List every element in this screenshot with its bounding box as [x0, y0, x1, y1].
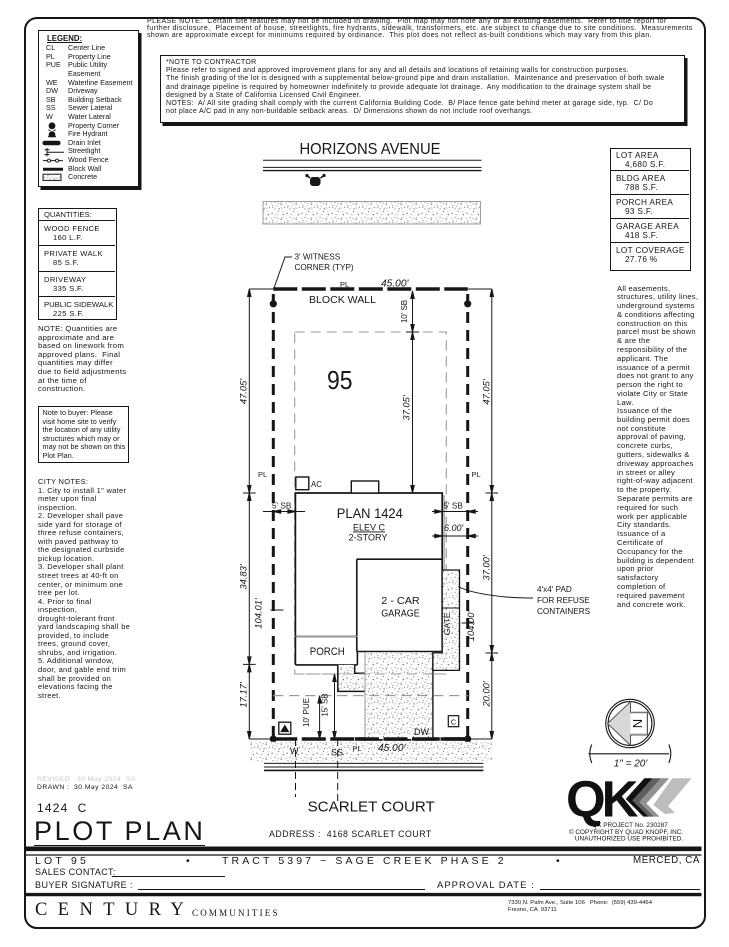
- svg-text:34.83': 34.83': [238, 563, 249, 589]
- svg-text:10' SB: 10' SB: [400, 300, 409, 323]
- svg-text:104.00': 104.00': [465, 610, 476, 642]
- svg-text:CORNER (TYP): CORNER (TYP): [295, 263, 354, 272]
- svg-text:6.00': 6.00': [444, 523, 464, 533]
- svg-text:N: N: [630, 719, 645, 728]
- svg-text:GARAGE: GARAGE: [381, 608, 420, 620]
- svg-text:CONTAINERS: CONTAINERS: [537, 607, 591, 616]
- svg-text:SCARLET COURT: SCARLET COURT: [308, 799, 435, 816]
- svg-text:C: C: [451, 718, 457, 727]
- svg-text:PL: PL: [472, 470, 481, 479]
- svg-text:45.00': 45.00': [378, 743, 406, 754]
- svg-text:17.17': 17.17': [238, 681, 249, 707]
- svg-text:95: 95: [327, 365, 353, 395]
- svg-text:SS: SS: [331, 748, 343, 758]
- svg-text:37.05': 37.05': [401, 394, 412, 420]
- svg-text:15' SB: 15' SB: [321, 693, 330, 716]
- svg-text:BLOCK WALL: BLOCK WALL: [309, 295, 376, 306]
- svg-text:1" = 20': 1" = 20': [614, 759, 649, 770]
- svg-text:PL: PL: [340, 280, 349, 289]
- svg-text:47.05': 47.05': [238, 378, 249, 404]
- svg-text:4'x4' PAD: 4'x4' PAD: [537, 585, 572, 594]
- svg-text:10' PUE: 10' PUE: [302, 698, 311, 727]
- svg-text:47.05': 47.05': [480, 378, 491, 404]
- svg-text:2-STORY: 2-STORY: [349, 533, 388, 543]
- svg-text:104.01': 104.01': [253, 597, 264, 629]
- svg-text:PLAN 1424: PLAN 1424: [337, 506, 403, 521]
- svg-text:HORIZONS AVENUE: HORIZONS AVENUE: [300, 141, 441, 158]
- svg-text:ELEV C: ELEV C: [353, 523, 386, 533]
- svg-text:PL: PL: [353, 744, 362, 753]
- svg-text:45.00': 45.00': [381, 279, 409, 290]
- svg-text:37.00': 37.00': [480, 554, 491, 580]
- svg-text:UNAUTHORIZED USE PROHIBITED.: UNAUTHORIZED USE PROHIBITED.: [575, 835, 684, 842]
- svg-text:FOR REFUSE: FOR REFUSE: [537, 596, 590, 605]
- svg-text:20.00': 20.00': [480, 680, 491, 707]
- svg-text:3' WITNESS: 3' WITNESS: [295, 253, 341, 262]
- svg-text:W: W: [290, 746, 299, 756]
- svg-text:DW: DW: [414, 727, 429, 737]
- svg-text:PORCH: PORCH: [310, 646, 345, 658]
- svg-text:GATE: GATE: [442, 612, 452, 635]
- svg-text:PL: PL: [258, 470, 267, 479]
- svg-text:AC: AC: [311, 480, 322, 489]
- svg-text:2 - CAR: 2 - CAR: [381, 595, 420, 607]
- svg-text:5' SB: 5' SB: [444, 502, 464, 511]
- svg-text:5' SB: 5' SB: [272, 502, 292, 511]
